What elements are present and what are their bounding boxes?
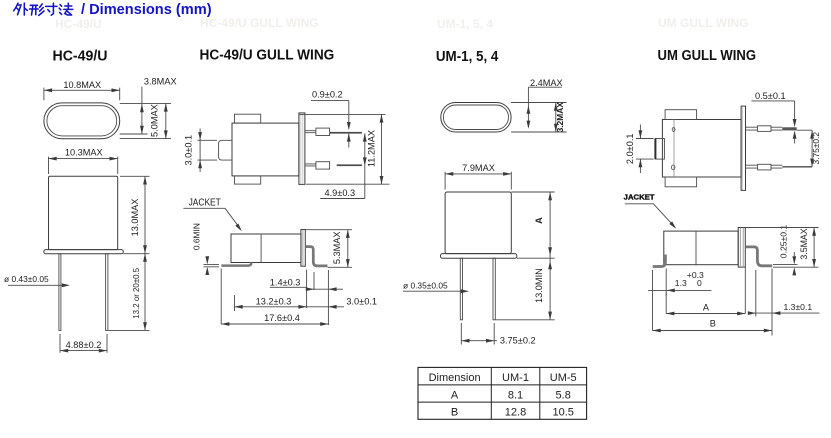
- svg-text:2.0±0.1: 2.0±0.1: [625, 134, 635, 165]
- svg-text:ø 0.35±0.05: ø 0.35±0.05: [403, 281, 448, 291]
- svg-text:JACKET: JACKET: [624, 195, 656, 202]
- svg-text:10.8MAX: 10.8MAX: [63, 80, 101, 90]
- svg-text:3.0±0.1: 3.0±0.1: [346, 297, 377, 307]
- svg-text:UM-1, 5, 4: UM-1, 5, 4: [437, 17, 493, 31]
- svg-text:7.9MAX: 7.9MAX: [462, 163, 495, 173]
- svg-text:2.4MAX: 2.4MAX: [530, 78, 563, 88]
- svg-text:11.2MAX: 11.2MAX: [366, 130, 376, 167]
- svg-text:ø 0.43±0.05: ø 0.43±0.05: [4, 274, 49, 284]
- svg-text:13.2 or 20±0.5: 13.2 or 20±0.5: [132, 267, 141, 318]
- svg-text:UM-1: UM-1: [502, 372, 529, 384]
- svg-text:0.25±0.1: 0.25±0.1: [779, 225, 789, 259]
- svg-text:3.0±0.1: 3.0±0.1: [184, 135, 194, 166]
- svg-text:A: A: [534, 217, 544, 224]
- svg-text:HC-49/U: HC-49/U: [53, 48, 108, 64]
- svg-text:HC-49/U GULL WING: HC-49/U GULL WING: [200, 47, 335, 63]
- svg-text:B: B: [710, 318, 716, 328]
- svg-text:5.0MAX: 5.0MAX: [149, 104, 159, 137]
- svg-text:3.5MAX: 3.5MAX: [799, 228, 809, 259]
- svg-text:1.4±0.3: 1.4±0.3: [270, 277, 301, 287]
- svg-text:Dimension: Dimension: [429, 372, 481, 384]
- svg-text:12.8: 12.8: [505, 407, 526, 419]
- svg-text:10.3MAX: 10.3MAX: [65, 147, 103, 157]
- svg-text:17.6±0.4: 17.6±0.4: [264, 313, 300, 323]
- svg-text:10.5: 10.5: [552, 407, 573, 419]
- svg-text:A: A: [703, 302, 710, 312]
- svg-text:HC-49/U: HC-49/U: [55, 17, 102, 31]
- svg-text:B: B: [451, 407, 458, 419]
- svg-text:0.9±0.2: 0.9±0.2: [312, 90, 343, 100]
- svg-text:/ Dimensions (mm): / Dimensions (mm): [81, 2, 212, 18]
- svg-text:13.0MAX: 13.0MAX: [130, 199, 140, 237]
- svg-text:UM-5: UM-5: [550, 372, 577, 384]
- svg-text:UM GULL WING: UM GULL WING: [658, 16, 748, 30]
- svg-text:0.5±0.1: 0.5±0.1: [755, 91, 786, 101]
- svg-text:0: 0: [697, 278, 702, 288]
- svg-text:13.0MIN: 13.0MIN: [534, 268, 544, 303]
- svg-text:3.75±0.2: 3.75±0.2: [500, 336, 536, 346]
- svg-text:1.3: 1.3: [675, 278, 687, 288]
- svg-text:8.1: 8.1: [508, 389, 523, 401]
- svg-text:3.8MAX: 3.8MAX: [144, 77, 177, 87]
- svg-text:UM GULL WING: UM GULL WING: [658, 48, 757, 64]
- svg-text:13.2±0.3: 13.2±0.3: [256, 297, 292, 307]
- svg-text:1.3±0.1: 1.3±0.1: [784, 302, 813, 312]
- svg-text:4.9±0.3: 4.9±0.3: [325, 188, 356, 198]
- svg-text:JACKET: JACKET: [189, 198, 222, 209]
- svg-text:HC-49/U GULL WING: HC-49/U GULL WING: [200, 16, 318, 30]
- svg-text:3.75±0.2: 3.75±0.2: [811, 132, 821, 165]
- svg-text:UM-1, 5, 4: UM-1, 5, 4: [436, 49, 499, 65]
- svg-text:5.3MAX: 5.3MAX: [332, 231, 342, 264]
- svg-text:4.88±0.2: 4.88±0.2: [66, 340, 102, 350]
- svg-text:A: A: [451, 389, 459, 401]
- svg-text:5.8: 5.8: [556, 389, 571, 401]
- svg-text:0.6MIN: 0.6MIN: [191, 223, 201, 250]
- svg-text:3.2MAX: 3.2MAX: [555, 102, 565, 133]
